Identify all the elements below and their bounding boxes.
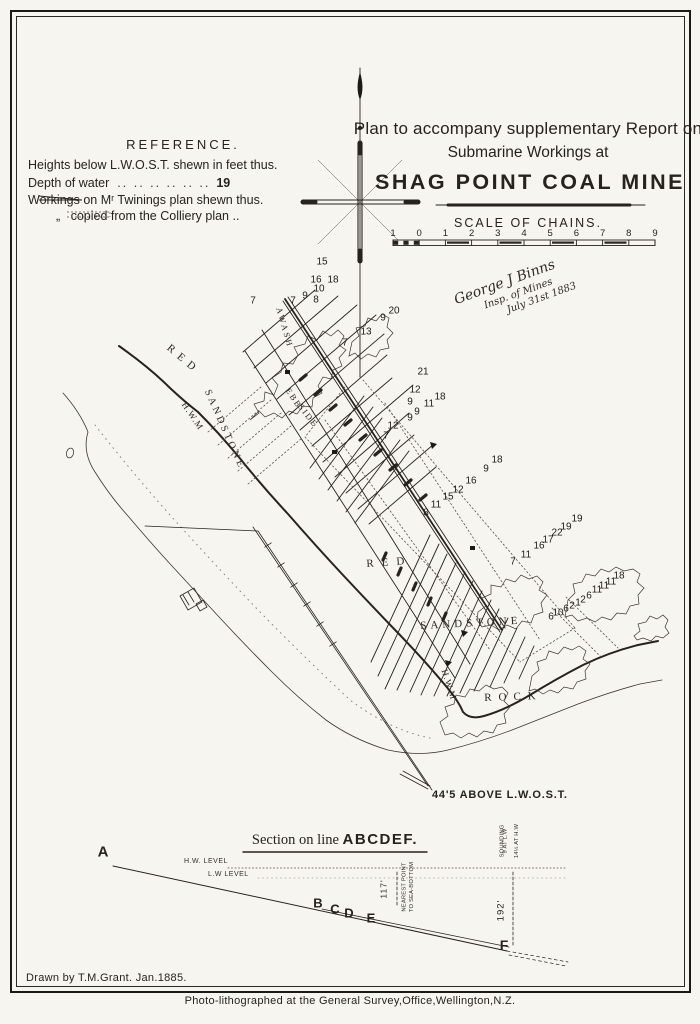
- reference-row: „ copied from the Colliery plan ..: [56, 209, 239, 223]
- dotted-line-symbol: [66, 209, 114, 219]
- depth-marker: 7: [510, 557, 516, 568]
- reference-row: Workings on Mʳ Twinings plan shewn thus.: [28, 193, 263, 207]
- plan-title-main: SHAG POINT COAL MINE: [375, 170, 685, 195]
- depth-marker: 7: [342, 338, 348, 349]
- depth-marker: 8: [423, 508, 429, 519]
- depth-marker: 7: [290, 296, 296, 307]
- depth-marker: 12: [409, 385, 420, 396]
- depth-marker: 9: [414, 407, 420, 418]
- leader-dots: .. .. .. .. .. ..: [117, 176, 210, 190]
- depth-marker: 10: [313, 284, 324, 295]
- lithographer-credit: Photo-lithographed at the General Survey…: [185, 995, 516, 1007]
- depth-marker: 9: [483, 464, 489, 475]
- depth-marker: 6: [586, 591, 592, 602]
- depth-marker: 20: [388, 306, 399, 317]
- geology-label: ROCK: [484, 690, 543, 704]
- scale-tick: 3: [495, 228, 500, 239]
- depth-marker: 18: [491, 455, 502, 466]
- section-title: Section on line ABCDEF.: [252, 831, 418, 849]
- scale-tick: 0: [417, 228, 422, 239]
- depth-marker: 11: [521, 550, 531, 561]
- sounding-note-2: 9 AT L.W: [502, 829, 508, 854]
- scale-tick: 4: [521, 228, 526, 239]
- depth-marker: 19: [571, 514, 582, 525]
- depth-marker: 6: [548, 612, 554, 623]
- depth-marker: 9: [407, 413, 413, 424]
- section-title-line-letters: ABCDEF.: [343, 831, 419, 848]
- scale-tick: 8: [626, 228, 631, 239]
- depth-marker: 15: [316, 257, 327, 268]
- scale-tick: 5: [548, 228, 553, 239]
- scale-tick-labels: 10123456789: [0, 228, 700, 240]
- sample-depth-value: 19: [216, 176, 230, 190]
- depth-marker: 7: [250, 296, 256, 307]
- scale-tick: 7: [600, 228, 605, 239]
- solid-line-symbol: [38, 193, 86, 203]
- depth-marker: 21: [417, 367, 428, 378]
- lithographed-map-sheet: { "doc": { "title_line1": "Plan to accom…: [0, 0, 700, 1024]
- reference-row-label: Depth of water: [28, 176, 109, 190]
- drawn-by-credit: Drawn by T.M.Grant. Jan.1885.: [26, 972, 187, 984]
- section-point-E: E: [367, 911, 376, 926]
- scale-tick: 1: [443, 228, 448, 239]
- depth-marker: 18: [327, 275, 338, 286]
- section-point-A: A: [98, 844, 109, 861]
- depth-marker: 11: [592, 585, 602, 596]
- depth-marker: 8: [313, 295, 319, 306]
- scale-tick: 2: [469, 228, 474, 239]
- sounding-note-3: 14½ AT H.W: [514, 824, 520, 858]
- depth-marker: 9: [407, 397, 413, 408]
- section-point-F: F: [500, 937, 509, 953]
- depth-marker: 15: [442, 492, 453, 503]
- reference-row-label: Heights below L.W.O.S.T. shewn in feet t…: [28, 158, 277, 172]
- reference-heading: REFERENCE.: [126, 137, 240, 152]
- scale-tick: 6: [574, 228, 579, 239]
- section-point-B: B: [313, 896, 322, 911]
- depth-marker: 12: [452, 485, 463, 496]
- plan-title-line1: Plan to accompany supplementary Report o…: [354, 119, 700, 139]
- depth-marker: 2: [569, 601, 575, 612]
- dim-117-note1: NEAREST POINT: [402, 862, 408, 911]
- height-note: 44'5 ABOVE L.W.O.S.T.: [432, 789, 568, 801]
- depth-marker: 16: [465, 476, 476, 487]
- ditto-mark: „: [56, 209, 60, 223]
- scale-tick: 9: [652, 228, 657, 239]
- dim-117: 117': [379, 879, 389, 898]
- depth-marker: 9: [302, 291, 308, 302]
- dim-192: 192': [495, 900, 506, 922]
- section-point-C: C: [330, 902, 339, 917]
- depth-marker: 11: [431, 500, 441, 511]
- section-point-D: D: [344, 906, 353, 921]
- hw-level-label: H.W. LEVEL: [184, 858, 228, 865]
- plan-title-line2: Submarine Workings at: [448, 144, 609, 162]
- depth-marker: 11: [424, 399, 434, 410]
- depth-marker: 16: [533, 541, 544, 552]
- depth-marker: 9: [380, 313, 386, 324]
- dim-117-note2: TO SEA-BOTTOM: [409, 862, 415, 912]
- depth-marker: 1: [575, 598, 581, 609]
- depth-marker: 18: [434, 392, 445, 403]
- depth-marker: 7: [383, 431, 389, 442]
- depth-marker: 6: [563, 604, 569, 615]
- section-title-prefix: Section on line: [252, 832, 343, 848]
- lw-level-label: L.W LEVEL: [208, 871, 249, 878]
- reference-row: Depth of water.. .. .. .. .. ..19: [28, 176, 230, 190]
- depth-marker: 13: [360, 327, 371, 338]
- reference-row: Heights below L.W.O.S.T. shewn in feet t…: [28, 158, 277, 172]
- scale-tick: 1: [390, 228, 395, 239]
